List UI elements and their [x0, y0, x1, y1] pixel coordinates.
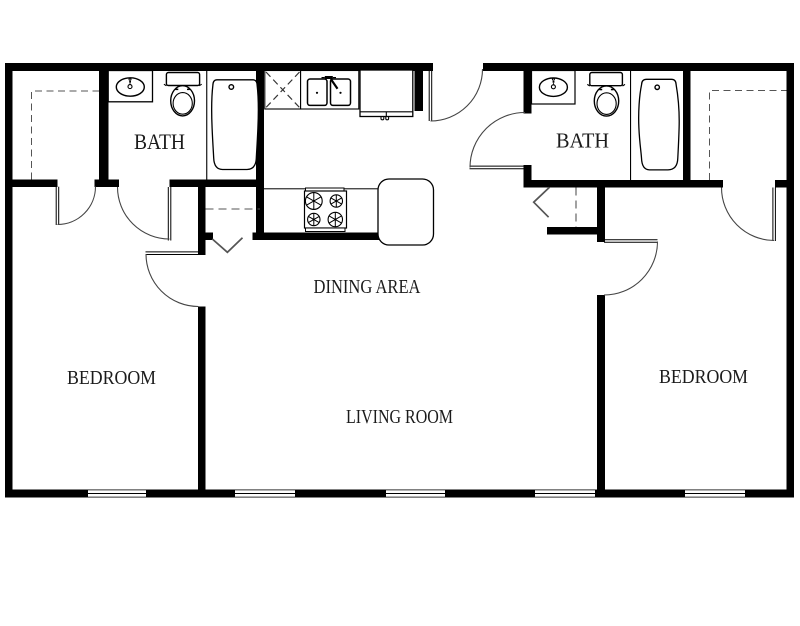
svg-text:DINING AREA: DINING AREA — [314, 276, 421, 298]
svg-text:BATH: BATH — [134, 129, 185, 154]
svg-text:BEDROOM: BEDROOM — [659, 366, 748, 388]
svg-text:LIVING ROOM: LIVING ROOM — [346, 406, 453, 428]
svg-text:BATH: BATH — [556, 129, 609, 153]
svg-text:BEDROOM: BEDROOM — [67, 367, 156, 389]
